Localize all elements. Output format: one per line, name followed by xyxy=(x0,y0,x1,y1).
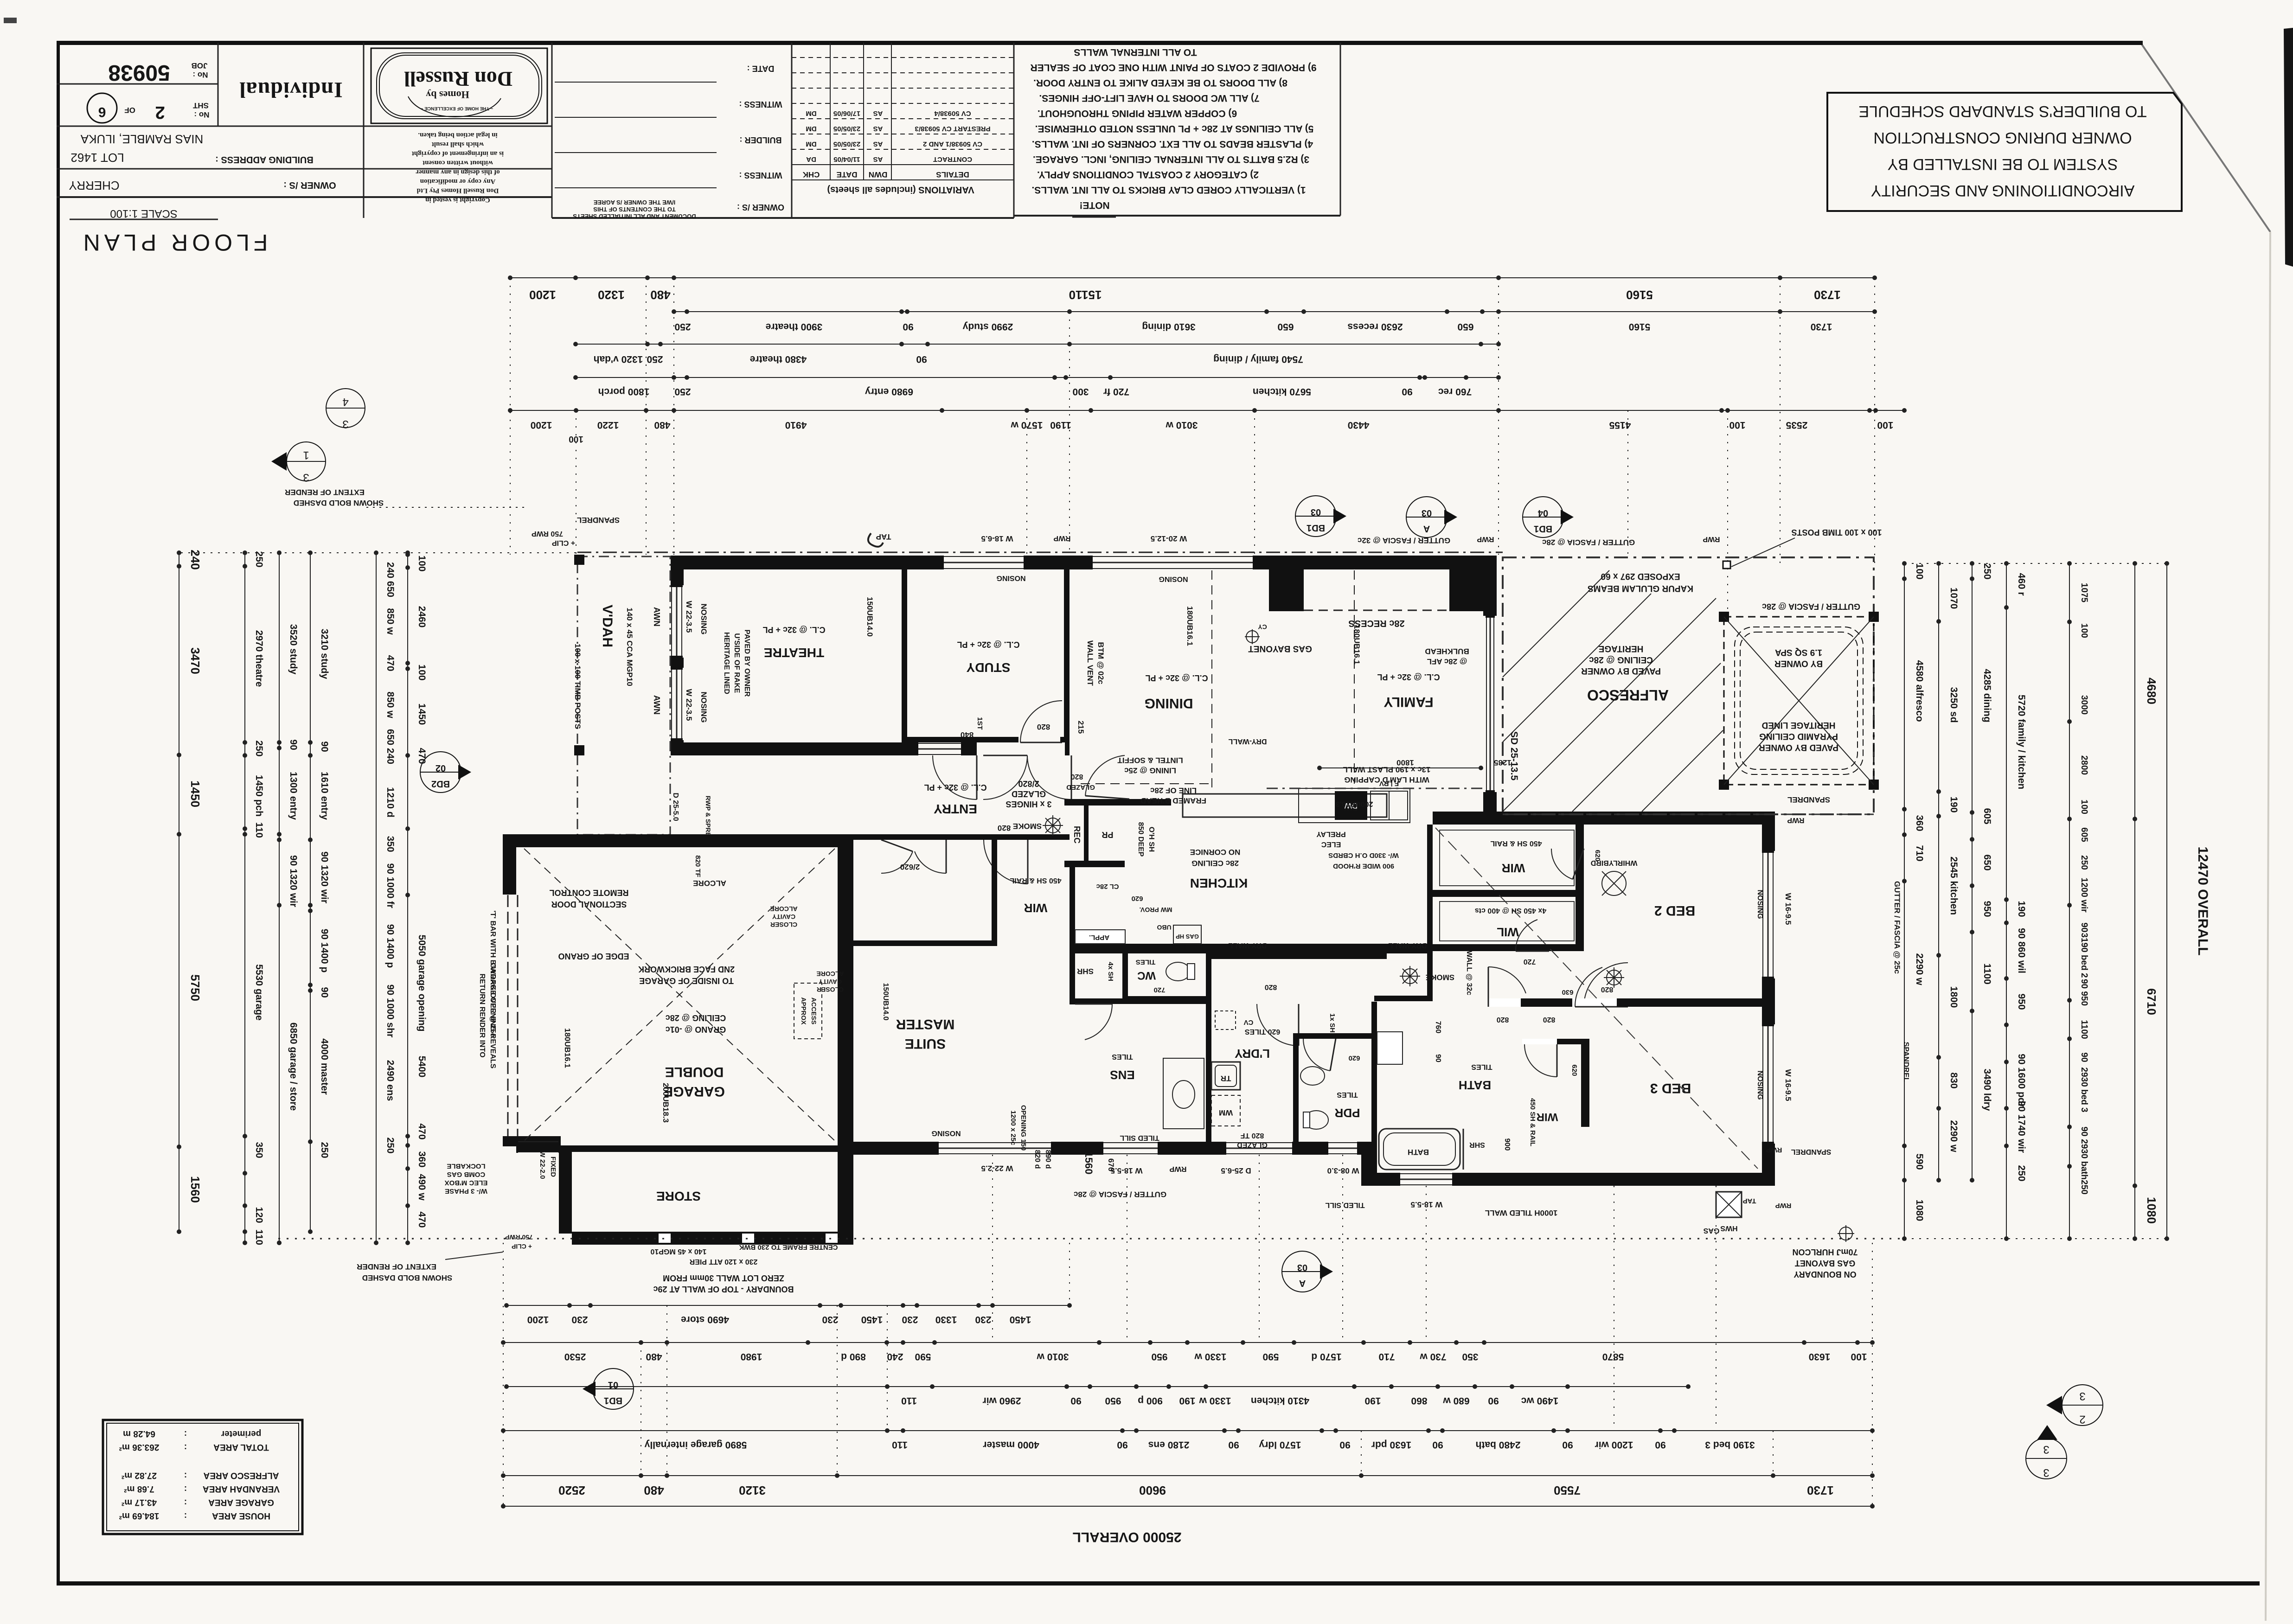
svg-text:90 1000 shr: 90 1000 shr xyxy=(385,985,396,1037)
svg-text:WALL @ 32c: WALL @ 32c xyxy=(1465,951,1473,995)
svg-text:TILES: TILES xyxy=(1471,1063,1492,1071)
svg-text:2930 bed 3: 2930 bed 3 xyxy=(2079,1067,2089,1112)
svg-text:GLAZED: GLAZED xyxy=(1066,783,1095,791)
svg-text:SECTIONAL DOOR: SECTIONAL DOOR xyxy=(551,900,627,909)
svg-text:GAS HP: GAS HP xyxy=(1176,933,1199,940)
svg-text:1080: 1080 xyxy=(1914,1200,1925,1221)
svg-text:HOUSE AREA: HOUSE AREA xyxy=(212,1511,270,1521)
svg-text:250: 250 xyxy=(2079,855,2089,870)
svg-text:180UB16.1: 180UB16.1 xyxy=(1185,606,1194,646)
svg-text:3010 w: 3010 w xyxy=(1166,420,1198,430)
svg-text:300: 300 xyxy=(1072,386,1089,397)
svg-text:04: 04 xyxy=(1537,508,1548,518)
svg-text:760 rec: 760 rec xyxy=(1438,386,1472,397)
svg-text:AS: AS xyxy=(873,155,883,163)
svg-text:1200 x 25c: 1200 x 25c xyxy=(1009,1110,1017,1145)
svg-text:4310 kitchen: 4310 kitchen xyxy=(1251,1395,1309,1406)
svg-text:LINING @ 25c: LINING @ 25c xyxy=(1124,766,1176,775)
svg-text:2/820: 2/820 xyxy=(1018,779,1039,788)
svg-text:4430: 4430 xyxy=(1348,420,1370,430)
svg-text:890 d: 890 d xyxy=(1044,1150,1052,1169)
svg-text:470: 470 xyxy=(416,748,427,764)
svg-text:RWP: RWP xyxy=(1766,1146,1782,1154)
svg-text:730 w: 730 w xyxy=(1420,1351,1447,1362)
svg-text:1980: 1980 xyxy=(741,1351,762,1362)
svg-text:480: 480 xyxy=(646,1351,662,1362)
svg-text:without written consent: without written consent xyxy=(423,159,493,166)
svg-text:WHIRLYBIRD: WHIRLYBIRD xyxy=(1591,859,1638,867)
svg-text:BD1: BD1 xyxy=(1307,523,1325,533)
svg-text:03: 03 xyxy=(1311,507,1321,517)
svg-text:215: 215 xyxy=(1076,721,1085,734)
svg-text:900 p: 900 p xyxy=(1138,1395,1163,1406)
svg-text:13c x 190 PLAST WALL: 13c x 190 PLAST WALL xyxy=(1343,765,1431,774)
svg-text:NOSING: NOSING xyxy=(1159,575,1188,583)
svg-text:BATH: BATH xyxy=(1408,1148,1429,1157)
svg-text:590: 590 xyxy=(1914,1153,1925,1170)
svg-text:GUTTER / FASCIA @ 32c: GUTTER / FASCIA @ 32c xyxy=(1358,536,1450,545)
svg-text:680 w: 680 w xyxy=(1443,1395,1470,1406)
svg-text:FAMILY: FAMILY xyxy=(1383,694,1433,710)
svg-text:1200: 1200 xyxy=(529,288,556,302)
svg-text:C.L. @ 32c + PL: C.L. @ 32c + PL xyxy=(957,640,1019,649)
svg-text:W 22-2.0: W 22-2.0 xyxy=(538,1151,546,1179)
svg-text:2800: 2800 xyxy=(2079,755,2089,775)
svg-text::: : xyxy=(184,1497,187,1507)
svg-text:1610 entry: 1610 entry xyxy=(319,772,330,820)
svg-text:4380 theatre: 4380 theatre xyxy=(750,354,807,364)
svg-text:ZERO LOT WALL 30mm FROM: ZERO LOT WALL 30mm FROM xyxy=(663,1273,784,1283)
svg-text:CV: CV xyxy=(1244,1018,1254,1026)
svg-text:4x 450 SH @ 400 cts: 4x 450 SH @ 400 cts xyxy=(1475,907,1546,914)
svg-text:3) R2.5 BATTS TO ALL INTERNAL: 3) R2.5 BATTS TO ALL INTERNAL CEILING, I… xyxy=(1033,154,1309,165)
svg-text:5890 garage internally: 5890 garage internally xyxy=(644,1439,747,1450)
svg-text:900 WIDE R'HOOD: 900 WIDE R'HOOD xyxy=(1333,862,1394,870)
svg-text:HWS: HWS xyxy=(1720,1224,1738,1232)
svg-text:CAVITY: CAVITY xyxy=(818,978,842,985)
svg-text:90: 90 xyxy=(1339,1439,1350,1450)
svg-text:2545 kitchen: 2545 kitchen xyxy=(1948,857,1959,915)
svg-text:THEATRE: THEATRE xyxy=(764,646,824,660)
svg-text:2990 study: 2990 study xyxy=(962,321,1013,332)
svg-text:1.9 SQ SPA: 1.9 SQ SPA xyxy=(1775,647,1822,657)
svg-text:Individual: Individual xyxy=(239,77,342,102)
svg-text:1490 wc: 1490 wc xyxy=(1521,1395,1558,1406)
svg-text:ALCORE: ALCORE xyxy=(693,879,726,888)
svg-text:6710: 6710 xyxy=(2145,988,2158,1015)
svg-text:8) ALL DOORS TO BE KEYED ALIKE: 8) ALL DOORS TO BE KEYED ALIKE TO ENTRY … xyxy=(1033,77,1287,88)
svg-text:1300 entry: 1300 entry xyxy=(288,772,299,820)
svg-text:Don Russell: Don Russell xyxy=(404,67,512,91)
svg-text:110: 110 xyxy=(254,822,264,838)
svg-text:1220: 1220 xyxy=(597,420,619,430)
svg-text:1000H TILED WALL: 1000H TILED WALL xyxy=(1485,1208,1558,1217)
svg-text:TILED SILL: TILED SILL xyxy=(1120,1134,1159,1142)
svg-text:O'H SH: O'H SH xyxy=(1147,827,1155,852)
svg-text:6850 garage / store: 6850 garage / store xyxy=(288,1023,299,1111)
svg-text:03: 03 xyxy=(1297,1262,1307,1272)
svg-text:CL 28c: CL 28c xyxy=(1096,882,1119,890)
svg-text:1730: 1730 xyxy=(1811,321,1832,332)
svg-text:2490 ens: 2490 ens xyxy=(385,1060,396,1101)
svg-text:100: 100 xyxy=(1914,563,1925,579)
svg-text:1570 ldry: 1570 ldry xyxy=(1259,1439,1301,1450)
svg-text:ALCORE: ALCORE xyxy=(770,905,797,913)
svg-text:1) VERTICALLY CORED CLAY BRICK: 1) VERTICALLY CORED CLAY BRICKS TO ALL I… xyxy=(1031,185,1306,195)
svg-text:6) COPPER WATER PIPING THROUGH: 6) COPPER WATER PIPING THROUGHOUT. xyxy=(1038,108,1237,119)
svg-text:900: 900 xyxy=(1503,1138,1511,1151)
svg-text:EXTENT OF RENDER: EXTENT OF RENDER xyxy=(285,488,365,497)
svg-text:3: 3 xyxy=(2079,1390,2085,1402)
svg-text:1330: 1330 xyxy=(935,1314,957,1325)
svg-text:1800: 1800 xyxy=(1396,758,1414,767)
svg-text:OF: OF xyxy=(124,106,135,115)
svg-text:STUDY: STUDY xyxy=(966,660,1010,675)
svg-text:4690 store: 4690 store xyxy=(681,1314,729,1325)
svg-text:1800 porch: 1800 porch xyxy=(598,386,650,397)
svg-text:GUTTER / FASCIA @ 28c: GUTTER / FASCIA @ 28c xyxy=(1074,1190,1166,1199)
svg-text:SD 25-13.5: SD 25-13.5 xyxy=(1509,731,1519,781)
svg-text:100: 100 xyxy=(1877,420,1893,430)
svg-text:650: 650 xyxy=(1982,854,1992,870)
svg-text:BULKHEAD: BULKHEAD xyxy=(1425,647,1469,656)
svg-text:250: 250 xyxy=(1982,563,1992,579)
svg-text:1800: 1800 xyxy=(1948,986,1959,1008)
svg-text:2290 w: 2290 w xyxy=(1948,1120,1959,1153)
svg-text:APPL.: APPL. xyxy=(1089,933,1109,941)
svg-text:4x SH: 4x SH xyxy=(1107,962,1114,981)
svg-text:PAVED BY OWNER: PAVED BY OWNER xyxy=(1581,666,1661,676)
svg-text:50938: 50938 xyxy=(108,60,170,85)
svg-text:2480 bath: 2480 bath xyxy=(1476,1439,1521,1450)
svg-text:W 20-12.5: W 20-12.5 xyxy=(1151,534,1187,543)
svg-text:NOTE!: NOTE! xyxy=(1079,200,1109,211)
svg-text:750 RWP: 750 RWP xyxy=(532,530,564,537)
svg-text:250: 250 xyxy=(385,1137,396,1153)
svg-text:FRAMED B'HEAD: FRAMED B'HEAD xyxy=(1140,796,1206,805)
svg-text:TO ALL INTERNAL WALLS: TO ALL INTERNAL WALLS xyxy=(1074,47,1197,58)
svg-text:RWP: RWP xyxy=(1169,1165,1186,1173)
svg-text:RETURN RENDER INTO: RETURN RENDER INTO xyxy=(478,973,486,1057)
svg-text:90: 90 xyxy=(1228,1439,1239,1450)
svg-text:CHERRY: CHERRY xyxy=(69,179,119,192)
svg-text:760: 760 xyxy=(1434,1021,1442,1034)
svg-text:RWP: RWP xyxy=(1703,535,1720,543)
svg-text:No :: No : xyxy=(192,70,208,79)
svg-text:C.L. @ 32c + PL: C.L. @ 32c + PL xyxy=(762,625,825,634)
svg-text:MASTER: MASTER xyxy=(896,1017,954,1032)
svg-text:90: 90 xyxy=(288,739,299,750)
svg-text:1450: 1450 xyxy=(416,703,427,725)
svg-text:1320 v'dah: 1320 v'dah xyxy=(594,354,643,364)
svg-text:CV 50938/4: CV 50938/4 xyxy=(934,109,971,117)
svg-text:950: 950 xyxy=(1151,1351,1167,1362)
svg-text:TILES: TILES xyxy=(1112,1053,1133,1061)
svg-text:GUTTER / FASCIA @ 28c: GUTTER / FASCIA @ 28c xyxy=(1762,602,1860,611)
svg-text:SHT: SHT xyxy=(192,101,209,110)
svg-text:90 1400 p: 90 1400 p xyxy=(319,929,330,973)
svg-text:140 x 45 MGP10: 140 x 45 MGP10 xyxy=(650,1247,706,1255)
svg-text:1560: 1560 xyxy=(1083,1152,1095,1175)
svg-text:U'SIDE OF RAKE: U'SIDE OF RAKE xyxy=(733,633,741,693)
svg-text:620: 620 xyxy=(1131,895,1143,902)
svg-text:2535: 2535 xyxy=(1786,420,1807,430)
svg-text:CHK: CHK xyxy=(802,170,820,179)
svg-text:2520: 2520 xyxy=(558,1483,585,1497)
svg-text:15110: 15110 xyxy=(1069,288,1102,302)
svg-text:2290 w: 2290 w xyxy=(1914,953,1925,986)
svg-text:250: 250 xyxy=(647,354,663,364)
svg-text:RWP: RWP xyxy=(1787,816,1804,824)
svg-text:4155: 4155 xyxy=(1609,420,1631,430)
svg-text:5870: 5870 xyxy=(1602,1351,1624,1362)
svg-text:70mJ HURLCON: 70mJ HURLCON xyxy=(1792,1247,1857,1257)
svg-text:5160: 5160 xyxy=(1626,288,1653,302)
svg-text:RWP: RWP xyxy=(1775,1202,1792,1209)
svg-text:3610 dining: 3610 dining xyxy=(1142,321,1196,332)
svg-text:720: 720 xyxy=(1153,986,1165,994)
svg-text:230: 230 xyxy=(571,1314,588,1325)
svg-text:5) ALL CEILINGS AT 28c + PL UN: 5) ALL CEILINGS AT 28c + PL UNLESS NOTED… xyxy=(1035,123,1314,134)
svg-text:200UB18.3: 200UB18.3 xyxy=(1335,800,1373,808)
svg-text:100: 100 xyxy=(416,664,427,680)
svg-text:BATH: BATH xyxy=(1459,1078,1491,1092)
svg-text:+ CLIP: + CLIP xyxy=(552,539,576,547)
svg-text:D 25-6.5: D 25-6.5 xyxy=(1221,1166,1251,1175)
svg-text:110: 110 xyxy=(254,1229,264,1245)
svg-text:5400: 5400 xyxy=(416,1056,427,1078)
svg-text:EDGE OF GRANO: EDGE OF GRANO xyxy=(558,952,629,961)
svg-text:64.28 m: 64.28 m xyxy=(123,1429,155,1439)
svg-text:5050 garage opening: 5050 garage opening xyxy=(416,935,427,1032)
svg-text:250: 250 xyxy=(2016,1165,2027,1181)
svg-text:11/04/05: 11/04/05 xyxy=(833,155,860,163)
svg-text:4000 master: 4000 master xyxy=(319,1038,330,1094)
svg-text:230: 230 xyxy=(902,1314,918,1325)
svg-text:240 650: 240 650 xyxy=(385,562,396,597)
svg-text:1450: 1450 xyxy=(1010,1314,1031,1325)
svg-text:ALFRESCO: ALFRESCO xyxy=(1587,687,1669,703)
svg-text:OWNER /S :: OWNER /S : xyxy=(737,203,784,212)
svg-text:890 d: 890 d xyxy=(841,1351,866,1362)
svg-text:WALL VENT: WALL VENT xyxy=(1086,640,1095,686)
svg-text:860: 860 xyxy=(1411,1395,1427,1406)
svg-text:7) ALL WC DOORS TO HAVE LIFT-O: 7) ALL WC DOORS TO HAVE LIFT-OFF HINGES. xyxy=(1039,93,1259,103)
svg-text:3210 study: 3210 study xyxy=(319,629,330,679)
svg-text:90: 90 xyxy=(319,987,330,997)
svg-text:90 1000 fr: 90 1000 fr xyxy=(385,863,396,908)
svg-text:W 18-6.5: W 18-6.5 xyxy=(981,534,1013,543)
svg-text:SUITE: SUITE xyxy=(905,1036,946,1051)
svg-text:W 22-3.5: W 22-3.5 xyxy=(685,601,693,633)
svg-text:VERANDAH AREA: VERANDAH AREA xyxy=(203,1484,280,1494)
svg-text:5750: 5750 xyxy=(188,974,202,1001)
svg-text:TAP: TAP xyxy=(876,532,891,541)
svg-text:1ST: 1ST xyxy=(976,717,984,730)
svg-text::: : xyxy=(184,1484,187,1494)
svg-text:1200: 1200 xyxy=(531,420,552,430)
svg-text:1075: 1075 xyxy=(2079,583,2089,603)
svg-text:120: 120 xyxy=(254,1207,264,1223)
svg-text:100: 100 xyxy=(1729,420,1745,430)
svg-text:2960 wir: 2960 wir xyxy=(983,1395,1021,1406)
svg-text:BD2: BD2 xyxy=(431,779,450,789)
svg-text:2) CATEGORY 2 COASTAL CONDITIO: 2) CATEGORY 2 COASTAL CONDITIONS APPLY. xyxy=(1037,169,1259,180)
svg-text:PR: PR xyxy=(1102,830,1113,839)
svg-text:Homes by: Homes by xyxy=(426,89,469,101)
svg-text:100 x 100 TIMB POSTS: 100 x 100 TIMB POSTS xyxy=(1791,528,1882,537)
svg-text:90: 90 xyxy=(1432,1439,1443,1450)
svg-text::: : xyxy=(184,1429,187,1439)
svg-text:820: 820 xyxy=(1071,773,1083,780)
svg-text:AIRCONDITIONING AND SECURITY: AIRCONDITIONING AND SECURITY xyxy=(1871,182,2135,199)
svg-text:SPANDREL: SPANDREL xyxy=(1791,1148,1831,1156)
svg-text:90: 90 xyxy=(2079,1052,2089,1062)
svg-text:DINING: DINING xyxy=(1145,696,1193,711)
svg-text:90: 90 xyxy=(319,741,330,752)
svg-text:5160: 5160 xyxy=(1629,321,1651,332)
svg-text:470: 470 xyxy=(385,655,396,671)
svg-text:DWN: DWN xyxy=(869,170,888,179)
svg-text:180UB16.1: 180UB16.1 xyxy=(563,1028,572,1068)
svg-text:GLAZED: GLAZED xyxy=(1237,1141,1268,1149)
svg-text:840: 840 xyxy=(961,730,974,739)
svg-text:STORE: STORE xyxy=(656,1189,701,1203)
svg-text:2930 bath: 2930 bath xyxy=(2079,1139,2089,1180)
svg-text:DM: DM xyxy=(806,109,816,117)
svg-text:263.36 m²: 263.36 m² xyxy=(119,1442,160,1452)
svg-text:90 860 wil: 90 860 wil xyxy=(2016,928,2027,973)
svg-text:605: 605 xyxy=(1982,808,1992,824)
svg-text:HERITAGE LINED: HERITAGE LINED xyxy=(723,632,730,694)
svg-text:2/620: 2/620 xyxy=(900,863,920,871)
svg-text:REMOTE CONTROL: REMOTE CONTROL xyxy=(550,888,629,897)
svg-text:COMB GAS: COMB GAS xyxy=(447,1170,486,1178)
svg-text:PYRAMID CEILING: PYRAMID CEILING xyxy=(1759,731,1838,741)
svg-text:590: 590 xyxy=(915,1351,931,1362)
svg-text:3190 bed 3: 3190 bed 3 xyxy=(1705,1439,1755,1450)
svg-text:WIR: WIR xyxy=(1024,901,1048,915)
svg-text:7540 family / dining: 7540 family / dining xyxy=(1213,354,1303,364)
svg-text:MW PROV.: MW PROV. xyxy=(1139,906,1172,914)
svg-text:RWP: RWP xyxy=(1477,535,1494,543)
svg-text:W 18-5.5: W 18-5.5 xyxy=(1411,1200,1443,1209)
svg-text:184.69 m²: 184.69 m² xyxy=(119,1511,160,1521)
svg-text:No :: No : xyxy=(194,110,209,119)
svg-text:240: 240 xyxy=(188,550,202,569)
svg-text:28c CEILING: 28c CEILING xyxy=(1191,859,1239,868)
svg-text:perimeter: perimeter xyxy=(221,1429,261,1439)
svg-text:450 SH & RAIL: 450 SH & RAIL xyxy=(1529,1098,1537,1146)
svg-text:90: 90 xyxy=(1562,1439,1573,1450)
svg-text:CLOSER: CLOSER xyxy=(817,986,844,993)
svg-text:AS: AS xyxy=(873,140,883,148)
svg-text:1x SH: 1x SH xyxy=(1328,1013,1336,1033)
svg-text:2460: 2460 xyxy=(416,606,427,628)
svg-text:JOB: JOB xyxy=(192,61,208,70)
svg-text:W 22-3.5: W 22-3.5 xyxy=(685,689,693,721)
svg-text:820 TF: 820 TF xyxy=(1240,1132,1264,1139)
svg-text:620: 620 xyxy=(1570,1064,1578,1076)
svg-text:I/WE THE OWNER /S AGREE: I/WE THE OWNER /S AGREE xyxy=(593,199,675,206)
svg-text:BUILDING ADDRESS :: BUILDING ADDRESS : xyxy=(215,154,313,165)
svg-text:90: 90 xyxy=(1117,1439,1127,1450)
svg-text:LINE OF 28c: LINE OF 28c xyxy=(1150,786,1197,795)
svg-text:150UB14.0: 150UB14.0 xyxy=(882,983,890,1021)
svg-text:NOSING: NOSING xyxy=(699,691,708,722)
svg-text:DM: DM xyxy=(806,125,816,133)
svg-text:VARIATIONS (includes all shee: VARIATIONS (includes all sheets) xyxy=(827,185,974,195)
svg-text:WIL: WIL xyxy=(1497,925,1519,939)
svg-text:1200 wir: 1200 wir xyxy=(1595,1439,1633,1450)
svg-text:WITH LAM'D CAPPING: WITH LAM'D CAPPING xyxy=(1344,775,1429,784)
svg-text:GARAGE: GARAGE xyxy=(664,1084,725,1099)
svg-text:TILES: TILES xyxy=(1337,1091,1358,1099)
svg-text:ALCORE: ALCORE xyxy=(816,970,844,978)
svg-text:820: 820 xyxy=(1265,983,1277,991)
svg-text:2ND FACE BRICKWORK: 2ND FACE BRICKWORK xyxy=(638,965,735,974)
svg-text:605: 605 xyxy=(2079,827,2089,842)
svg-text:3190 bed 2: 3190 bed 2 xyxy=(2079,933,2089,978)
svg-text:SHOWN BOLD DASHED: SHOWN BOLD DASHED xyxy=(294,499,384,507)
svg-text:3: 3 xyxy=(342,418,348,430)
svg-text:TO BUILDER'S STANDARD SCHEDULE: TO BUILDER'S STANDARD SCHEDULE xyxy=(1858,102,2146,120)
svg-text:APPROX: APPROX xyxy=(800,997,807,1025)
svg-text:HERITAGE: HERITAGE xyxy=(1599,644,1644,653)
svg-text:820 TF: 820 TF xyxy=(694,855,702,877)
svg-text:+ CLIP: + CLIP xyxy=(512,1243,532,1250)
svg-text:1560: 1560 xyxy=(188,1176,202,1203)
svg-text:5530 garage: 5530 garage xyxy=(254,964,264,1020)
svg-text:360: 360 xyxy=(416,1151,427,1167)
svg-text:of this design in any manner: of this design in any manner xyxy=(416,168,500,176)
svg-text:3900 theatre: 3900 theatre xyxy=(766,321,823,332)
svg-text:L'DRY: L'DRY xyxy=(1235,1047,1270,1061)
svg-text:1210 d: 1210 d xyxy=(385,787,396,817)
svg-text:Copyright is vested in: Copyright is vested in xyxy=(425,196,490,204)
svg-text:GAS BAYONET: GAS BAYONET xyxy=(1795,1259,1855,1268)
svg-text:43.17 m²: 43.17 m² xyxy=(122,1497,157,1507)
svg-text:250: 250 xyxy=(254,551,264,567)
svg-text:1630: 1630 xyxy=(1809,1351,1831,1362)
svg-text:4285 dining: 4285 dining xyxy=(1982,669,1992,722)
svg-text:SPANDREL: SPANDREL xyxy=(1787,795,1830,804)
svg-text:TAP: TAP xyxy=(1743,1197,1756,1205)
svg-text:TOTAL AREA: TOTAL AREA xyxy=(213,1442,269,1452)
svg-text:UBO: UBO xyxy=(1157,924,1171,931)
svg-text:ON BOUNDARY: ON BOUNDARY xyxy=(1793,1270,1856,1279)
svg-text:23/05/05: 23/05/05 xyxy=(833,125,860,133)
svg-text:GARAGE OPENING REVEALS: GARAGE OPENING REVEALS xyxy=(489,963,497,1069)
svg-text:ACCESS: ACCESS xyxy=(810,997,818,1024)
svg-text:180UB16.1: 180UB16.1 xyxy=(1352,625,1361,665)
svg-text::: : xyxy=(184,1511,187,1521)
svg-text:4) PLASTER BEADS TO ALL EXT. C: 4) PLASTER BEADS TO ALL EXT. CORNERS OF … xyxy=(1032,139,1313,149)
svg-text:ALFRESCO AREA: ALFRESCO AREA xyxy=(203,1471,279,1480)
svg-text:3010 w: 3010 w xyxy=(1037,1351,1069,1362)
svg-text:1730: 1730 xyxy=(1807,1483,1834,1497)
svg-text:190: 190 xyxy=(1948,796,1959,812)
svg-text:5720 family / kitchen: 5720 family / kitchen xyxy=(2016,695,2027,789)
svg-text:FIXED: FIXED xyxy=(549,1157,557,1177)
svg-text:350: 350 xyxy=(1462,1351,1478,1362)
svg-text:PRELAY: PRELAY xyxy=(1316,830,1346,838)
svg-text:250: 250 xyxy=(2079,1180,2089,1195)
svg-text:820: 820 xyxy=(1497,1016,1509,1023)
svg-text:90: 90 xyxy=(903,321,913,332)
svg-text:23/05/05: 23/05/05 xyxy=(833,140,860,148)
svg-text:GLAZED: GLAZED xyxy=(1012,789,1046,799)
